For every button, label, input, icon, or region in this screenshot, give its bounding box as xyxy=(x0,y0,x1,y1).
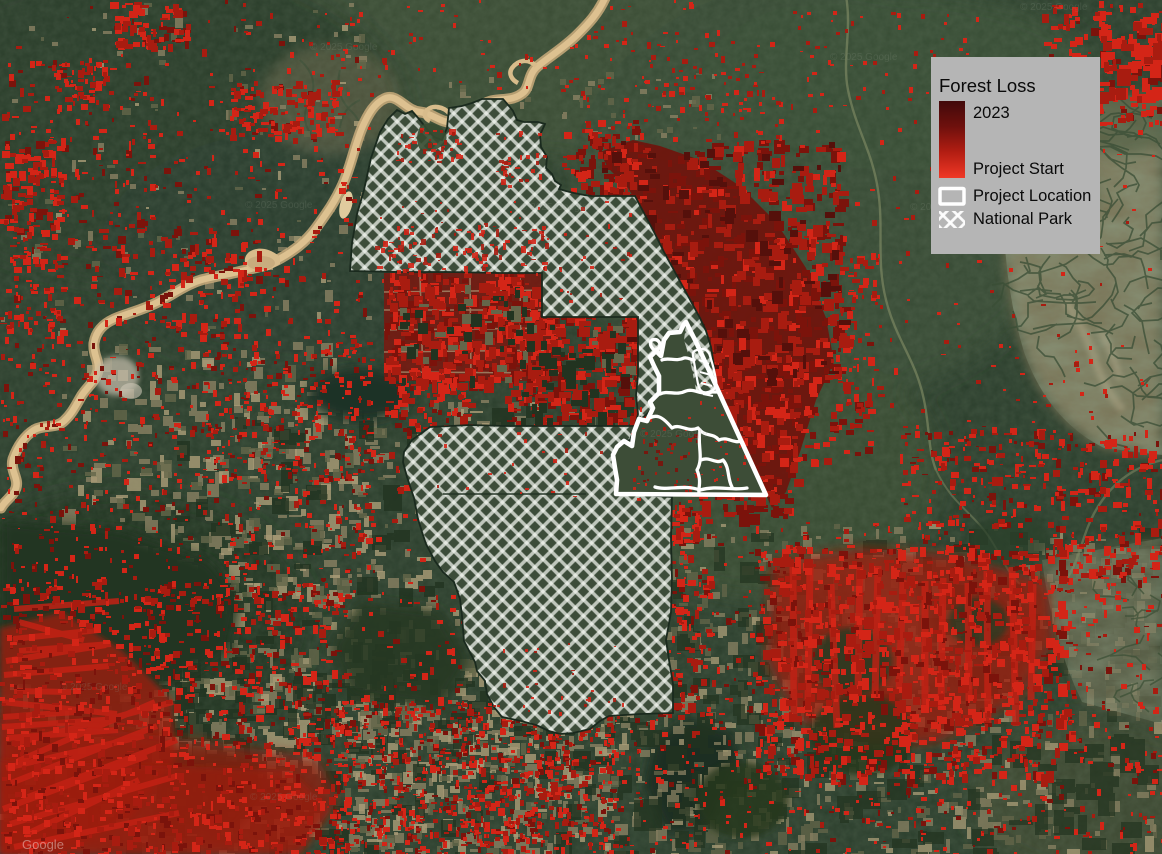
svg-text:© 2025 Google: © 2025 Google xyxy=(640,429,708,440)
svg-text:2023: 2023 xyxy=(973,104,1010,122)
svg-text:© 2025 Google: © 2025 Google xyxy=(1020,2,1088,13)
svg-text:Project Location: Project Location xyxy=(973,187,1091,205)
svg-text:© 2025 Google: © 2025 Google xyxy=(310,42,378,53)
svg-text:Google: Google xyxy=(22,837,64,852)
svg-text:National Park: National Park xyxy=(973,210,1073,228)
svg-text:Forest Loss: Forest Loss xyxy=(939,75,1036,96)
svg-text:© 2025 Google: © 2025 Google xyxy=(250,792,318,803)
svg-text:© 2025 Google: © 2025 Google xyxy=(520,202,588,213)
svg-text:© 2025 Google: © 2025 Google xyxy=(245,200,313,211)
svg-text:© 2025 Google: © 2025 Google xyxy=(830,52,898,63)
svg-text:Project Start: Project Start xyxy=(973,160,1064,178)
svg-text:© 2025 Google: © 2025 Google xyxy=(60,682,128,693)
